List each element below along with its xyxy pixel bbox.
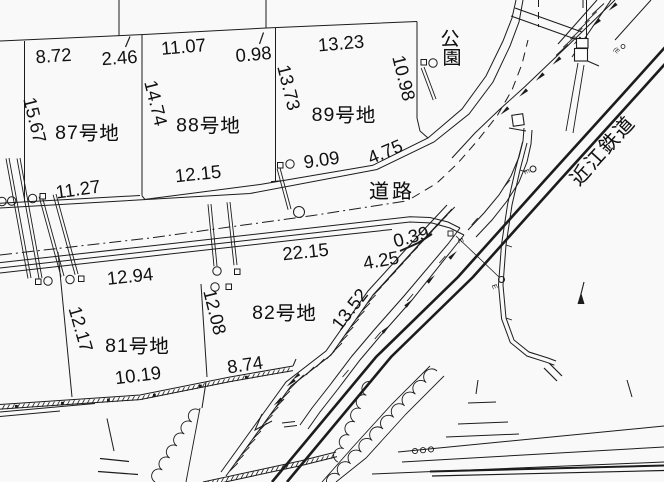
svg-text:13.23: 13.23 <box>317 31 365 56</box>
svg-text:8.72: 8.72 <box>35 44 72 67</box>
svg-text:8: 8 <box>176 115 187 137</box>
svg-text:0.98: 0.98 <box>235 42 273 66</box>
svg-text:2.46: 2.46 <box>101 46 138 69</box>
svg-text:8: 8 <box>188 115 199 137</box>
svg-text:7: 7 <box>67 122 78 144</box>
svg-text:8: 8 <box>252 302 263 324</box>
svg-text:11.07: 11.07 <box>160 34 207 59</box>
svg-text:1: 1 <box>117 335 128 357</box>
svg-text:8: 8 <box>312 104 323 126</box>
svg-text:9: 9 <box>323 104 334 126</box>
svg-text:8: 8 <box>105 335 116 357</box>
svg-text:2: 2 <box>264 302 275 324</box>
svg-text:8: 8 <box>55 122 66 144</box>
